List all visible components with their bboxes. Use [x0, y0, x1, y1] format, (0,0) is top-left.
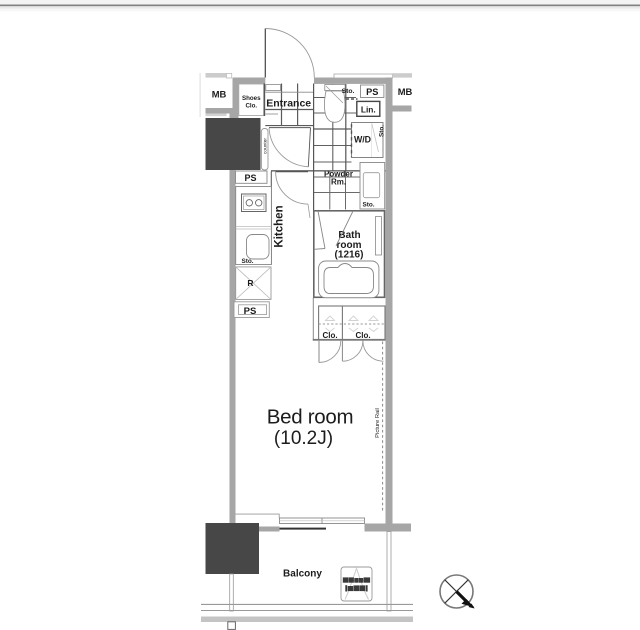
svg-text:Picture Rail: Picture Rail: [375, 408, 381, 438]
svg-text:Kitchen: Kitchen: [274, 205, 286, 247]
svg-text:PS: PS: [244, 306, 257, 317]
svg-text:Bed room: Bed room: [267, 406, 353, 429]
svg-text:MB: MB: [398, 86, 413, 97]
svg-text:Balcony: Balcony: [283, 569, 322, 580]
svg-text:Entrance: Entrance: [266, 97, 311, 109]
svg-text:Rm.: Rm.: [331, 178, 346, 187]
svg-text:Sto.: Sto.: [362, 202, 374, 209]
svg-text:Clo.: Clo.: [355, 331, 370, 340]
svg-text:Lin.: Lin.: [361, 104, 376, 114]
svg-text:Shoes: Shoes: [242, 95, 261, 102]
svg-text:PS: PS: [244, 173, 256, 183]
svg-text:Sto.: Sto.: [342, 88, 355, 95]
svg-text:Sto.: Sto.: [378, 125, 385, 137]
svg-text:MB: MB: [212, 89, 227, 100]
svg-text:Sto.: Sto.: [241, 258, 253, 265]
svg-text:counter: counter: [262, 138, 268, 154]
svg-text:(10.2J): (10.2J): [274, 428, 333, 449]
svg-text:R: R: [247, 278, 253, 288]
svg-text:(1216): (1216): [335, 250, 364, 261]
svg-text:PS: PS: [366, 87, 378, 97]
svg-text:Clo.: Clo.: [245, 103, 257, 110]
svg-text:W/D: W/D: [354, 135, 371, 145]
svg-text:Clo.: Clo.: [322, 331, 337, 340]
